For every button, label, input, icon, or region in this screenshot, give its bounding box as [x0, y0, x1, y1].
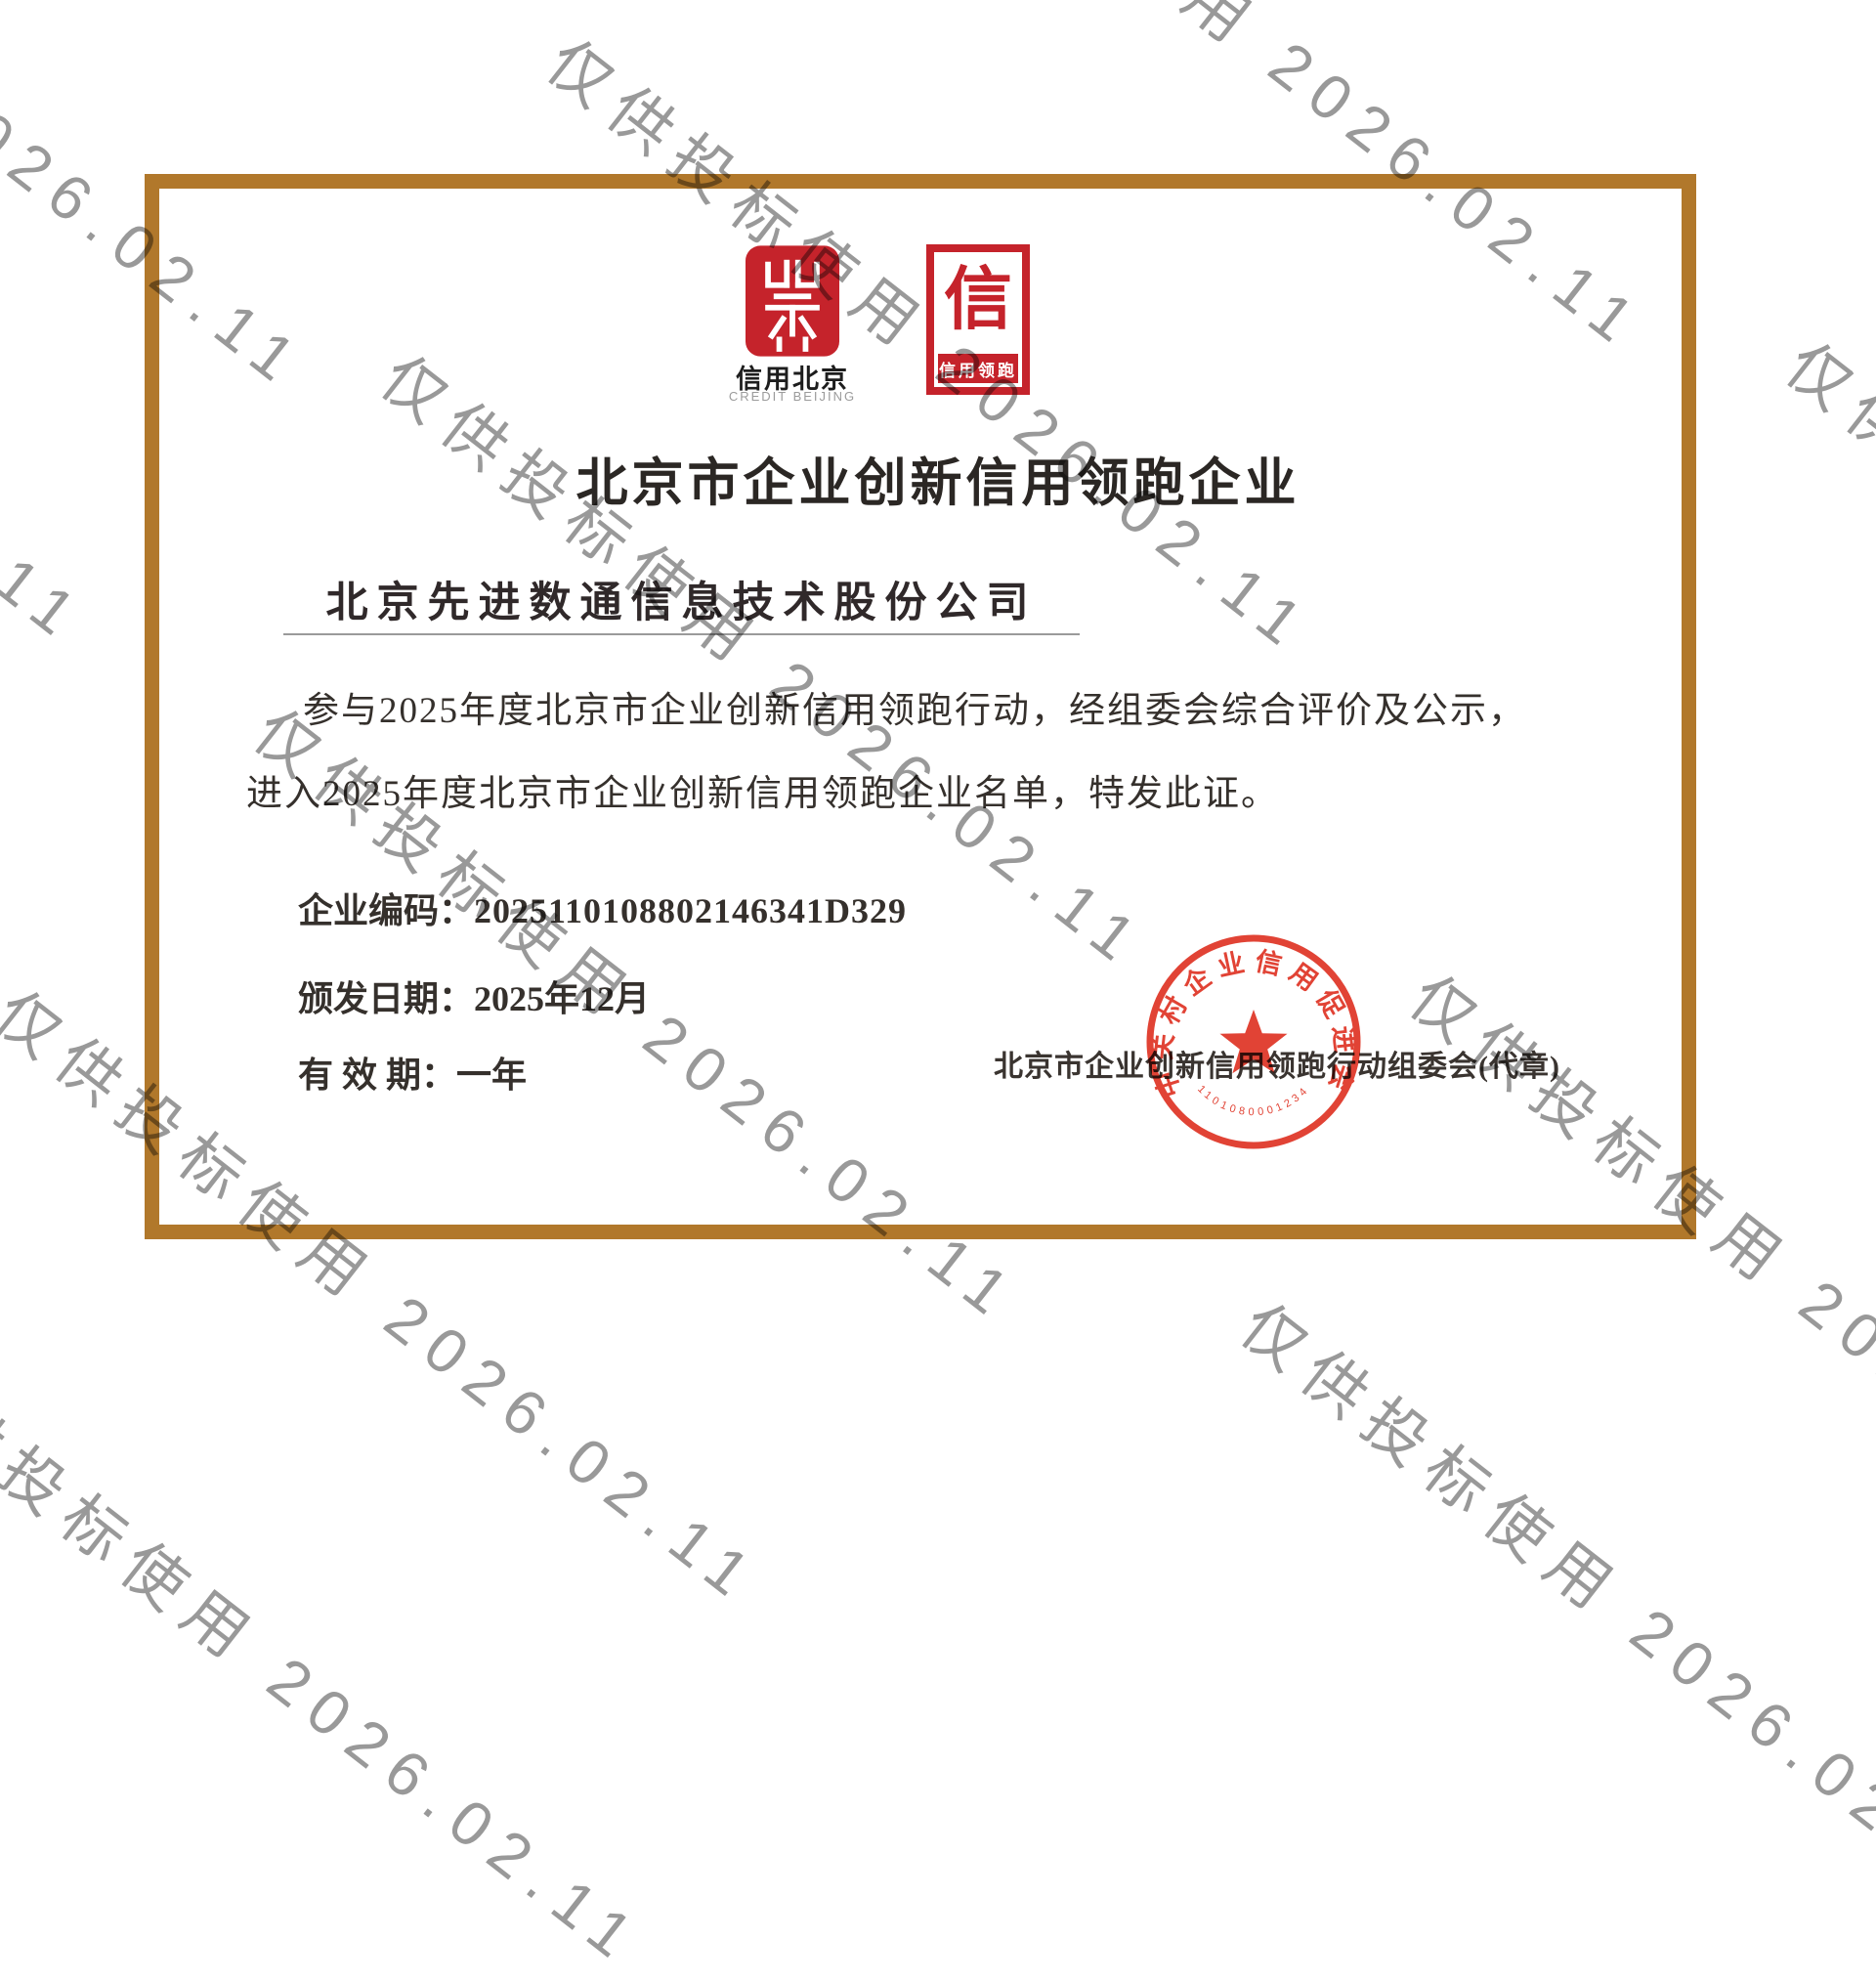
seal-bottom-code: 1101080001234 — [1195, 1083, 1312, 1118]
company-name: 北京先进数通信息技术股份公司 — [326, 569, 1038, 633]
seal-star-icon — [1220, 1010, 1288, 1073]
enterprise-code-row: 企业编码：2025110108802146341D329 — [298, 883, 907, 933]
credit-beijing-caption-en: CREDIT BEIJING — [706, 389, 878, 404]
certificate-title: 北京市企业创新信用领跑企业 — [0, 442, 1876, 516]
body-text-line-2: 进入2025年度北京市企业创新信用领跑企业名单，特发此证。 — [246, 763, 1279, 816]
watermark-text: 仅供投标使用 2026.02.11 — [0, 1327, 665, 1983]
validity-value: 一年 — [456, 1056, 527, 1095]
svg-text:1101080001234: 1101080001234 — [1195, 1083, 1312, 1118]
issue-date-row: 颁发日期：2025年12月 — [298, 970, 650, 1021]
credit-leader-band-label: 信用领跑 — [938, 354, 1018, 383]
enterprise-code-value: 2025110108802146341D329 — [474, 891, 907, 930]
official-seal: 中关村企业信用促进会 1101080001234 — [1143, 931, 1364, 1152]
enterprise-code-label: 企业编码： — [298, 891, 474, 930]
watermark-text: 仅供投标使用 2026.02.11 — [0, 5, 108, 661]
body-text-line-1: 参与2025年度北京市企业创新信用领跑行动，经组委会综合评价及公示， — [303, 680, 1526, 733]
certificate-page: 信用北京 CREDIT BEIJING 信 信用领跑 北京市企业创新信用领跑企业… — [0, 0, 1876, 1409]
issue-date-label: 颁发日期： — [298, 979, 474, 1018]
credit-beijing-logo-icon — [746, 244, 839, 360]
credit-leader-glyph: 信 — [934, 254, 1022, 348]
validity-label: 有 效 期： — [298, 1056, 456, 1095]
watermark-text: 仅供投标使用 2026.02.11 — [1224, 1278, 1876, 1934]
issue-date-value: 2025年12月 — [474, 979, 650, 1018]
watermark-text: 仅供投标使用 2026.02.11 — [1769, 318, 1876, 973]
credit-leader-logo-icon: 信 信用领跑 — [926, 244, 1030, 395]
company-name-underline: 北京先进数通信息技术股份公司 — [283, 575, 1080, 635]
validity-row: 有 效 期：一年 — [298, 1047, 527, 1098]
